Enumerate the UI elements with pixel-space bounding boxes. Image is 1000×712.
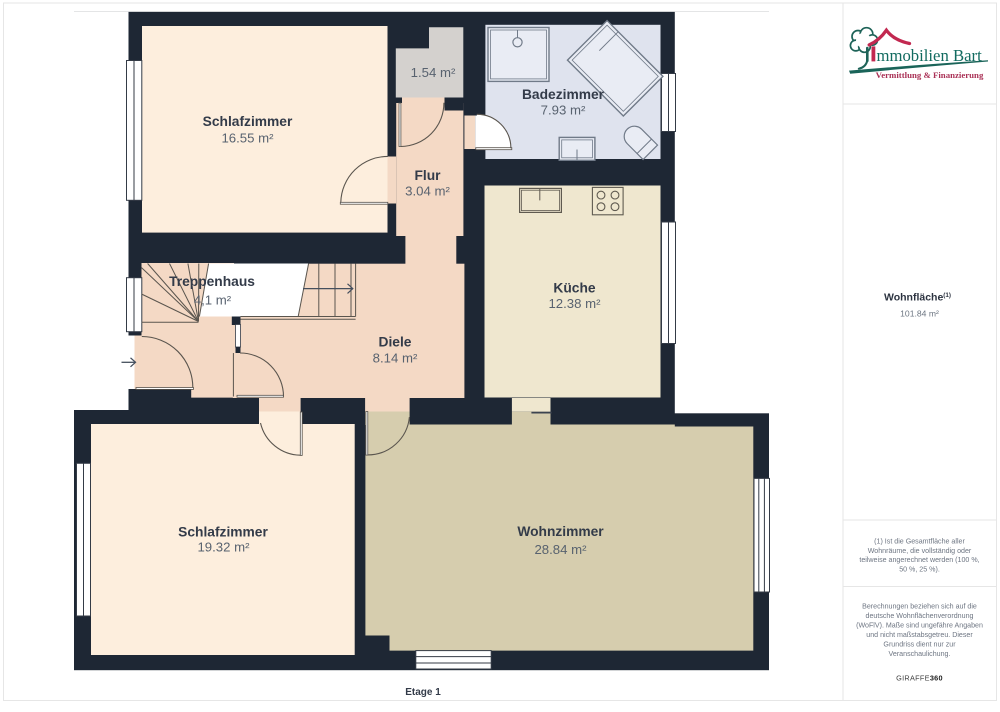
svg-text:(WoFlV). Maße sind ungefähre A: (WoFlV). Maße sind ungefähre Angaben [856,622,983,630]
svg-text:(1) Ist die Gesamtfläche aller: (1) Ist die Gesamtfläche aller [874,537,965,545]
svg-text:Berechnungen beziehen sich auf: Berechnungen beziehen sich auf die [862,602,977,610]
svg-text:Schlafzimmer: Schlafzimmer [203,114,293,129]
svg-text:50 %, 25 %).: 50 %, 25 %). [899,566,940,574]
svg-text:Flur: Flur [414,168,441,183]
svg-text:16.55 m²: 16.55 m² [221,131,274,146]
svg-text:101.84 m²: 101.84 m² [900,309,939,319]
svg-text:1.54 m²: 1.54 m² [411,65,456,80]
svg-text:8.14 m²: 8.14 m² [373,351,418,366]
svg-text:GIRAFFE360: GIRAFFE360 [896,673,943,682]
svg-text:Diele: Diele [379,335,412,350]
svg-text:Etage 1: Etage 1 [405,687,441,698]
svg-text:Treppenhaus: Treppenhaus [169,274,255,289]
svg-text:Badezimmer: Badezimmer [522,87,605,102]
svg-text:Wohnzimmer: Wohnzimmer [517,524,604,539]
svg-text:4,1 m²: 4,1 m² [194,293,232,308]
svg-text:3.04 m²: 3.04 m² [405,184,450,199]
svg-text:Wohnräume, die vollständig ode: Wohnräume, die vollständig oder [868,547,972,555]
svg-text:19.32 m²: 19.32 m² [197,540,250,555]
svg-text:teilweise angerechnet werden (: teilweise angerechnet werden (100 %, [859,556,979,564]
svg-text:28.84 m²: 28.84 m² [534,542,587,557]
svg-text:Küche: Küche [553,281,595,296]
svg-text:Veranschaulichung.: Veranschaulichung. [889,650,951,658]
svg-text:Grundriss dient nur zur: Grundriss dient nur zur [883,641,956,649]
svg-text:12.38 m²: 12.38 m² [548,296,601,311]
svg-text:Wohnfläche(1): Wohnfläche(1) [884,292,951,304]
svg-text:deutsche Wohnflächenverordnung: deutsche Wohnflächenverordnung [866,612,974,620]
svg-text:Vermittlung & Finanzierung: Vermittlung & Finanzierung [876,70,984,80]
svg-text:und nicht maßstabsgetreu. Dies: und nicht maßstabsgetreu. Dieser [866,631,973,639]
svg-text:7.93 m²: 7.93 m² [541,102,586,117]
svg-text:Schlafzimmer: Schlafzimmer [178,525,268,540]
